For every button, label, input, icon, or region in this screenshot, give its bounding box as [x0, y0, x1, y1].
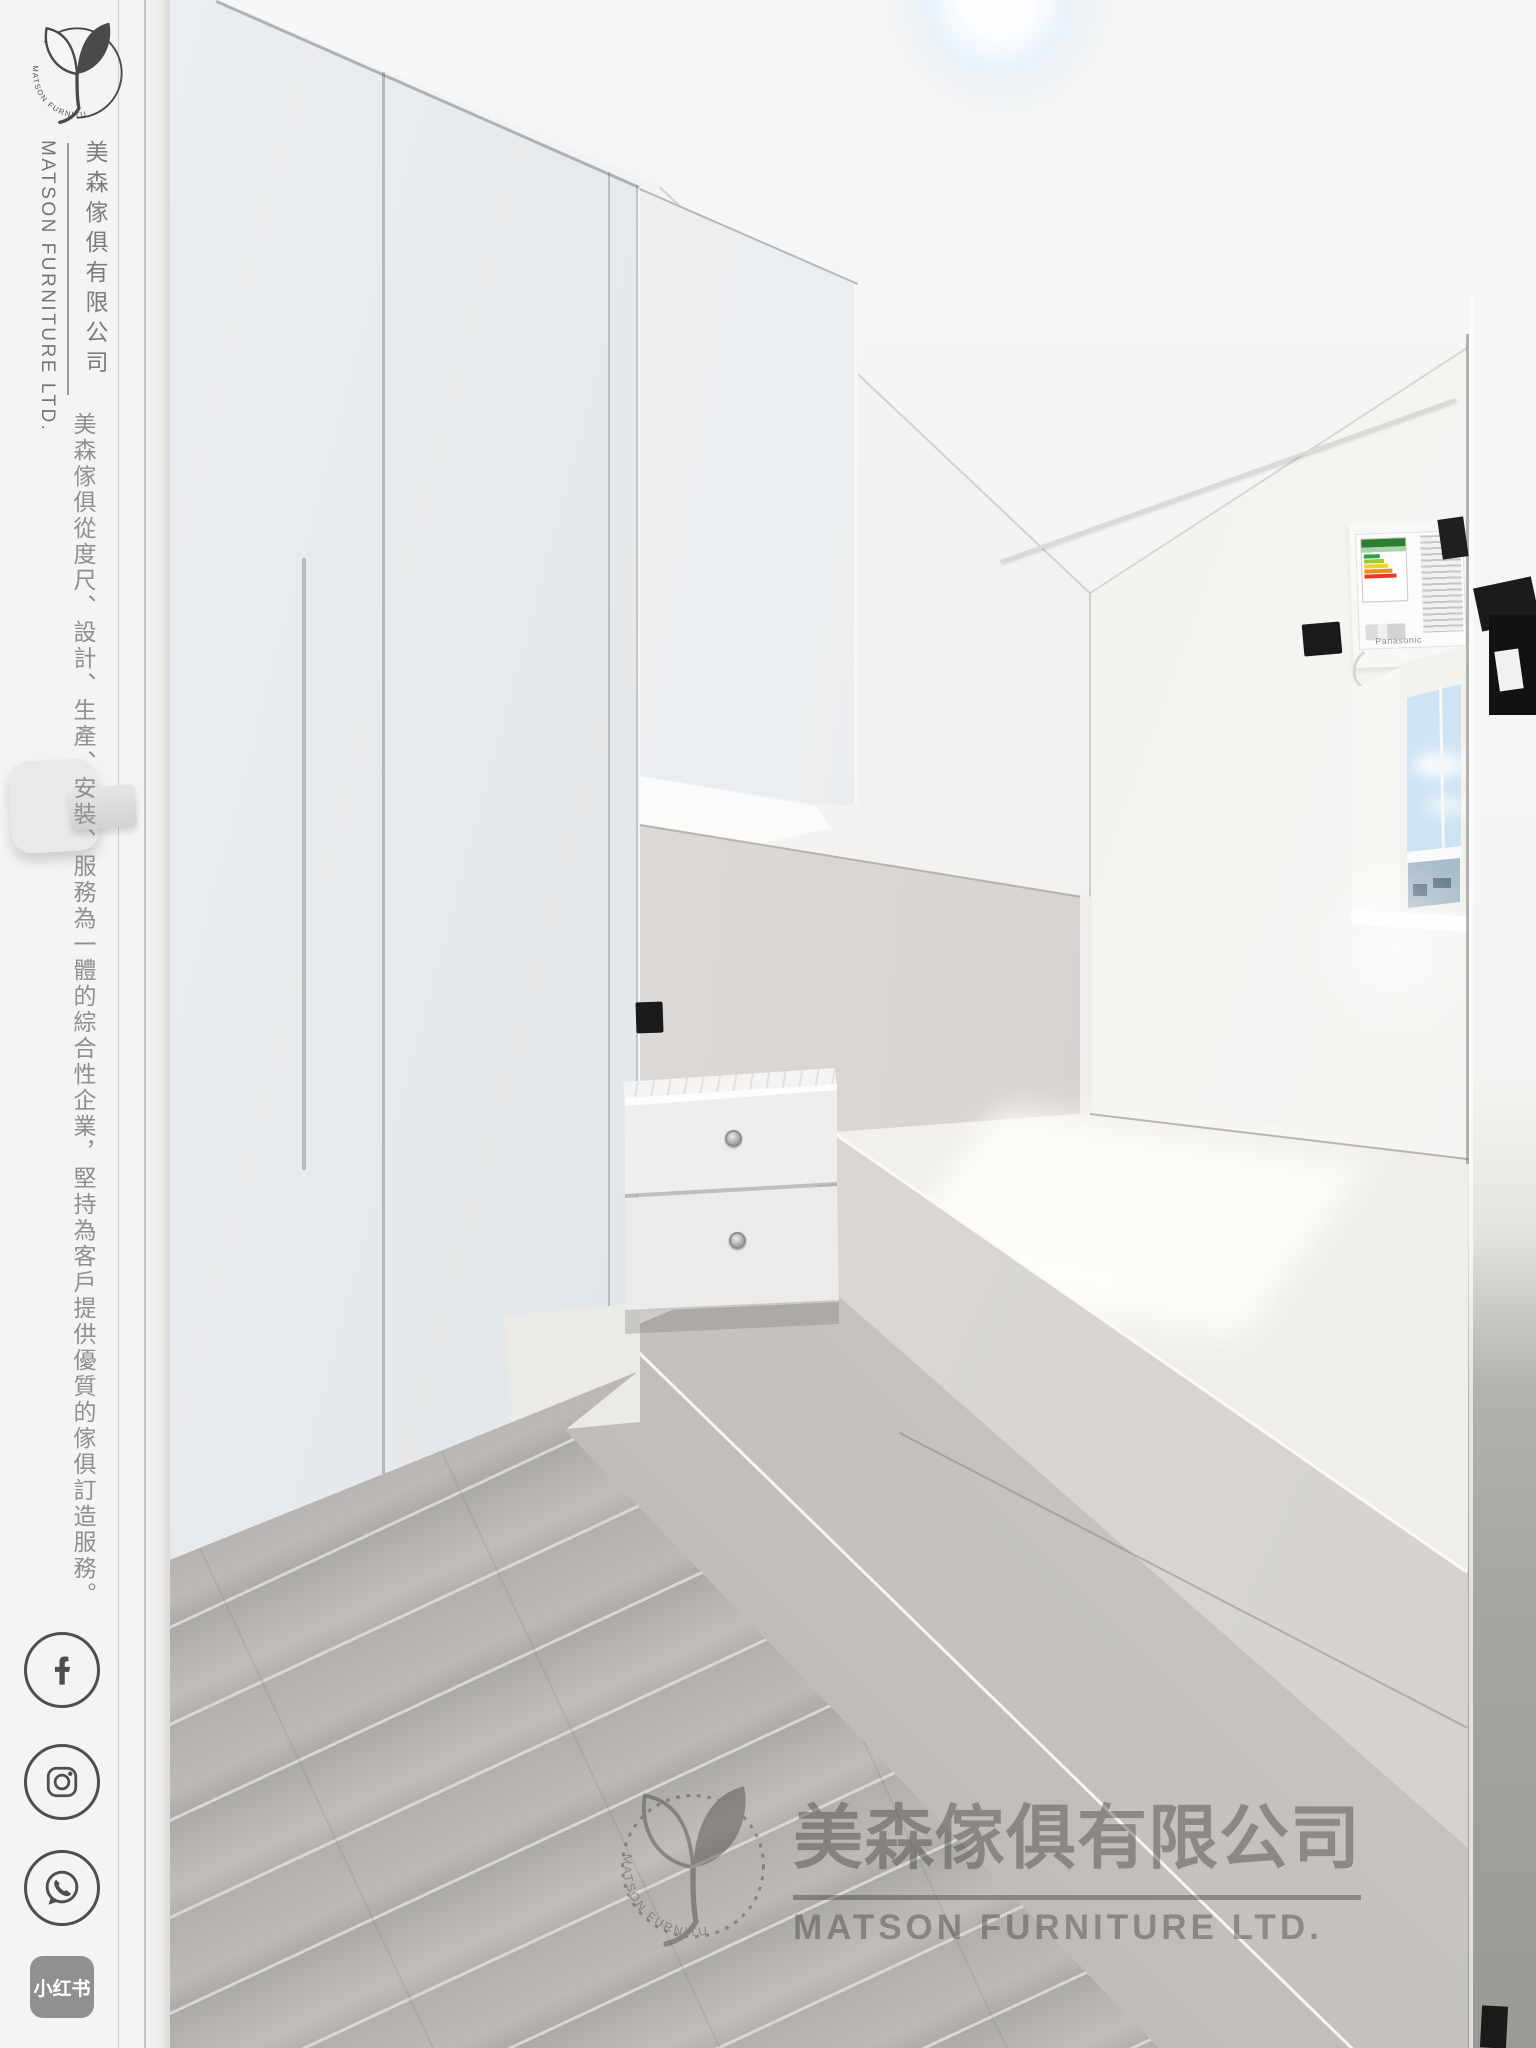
door-latch: [1437, 516, 1468, 559]
room-photo: Panasonic: [145, 0, 1536, 2048]
cloud: [1413, 752, 1465, 778]
sidebar-divider: [144, 0, 146, 2048]
ac-brand-text: Panasonic: [1375, 635, 1422, 647]
xiaohongshu-icon[interactable]: 小红书: [30, 1956, 94, 2018]
wardrobe-handle-groove: [302, 558, 306, 1170]
energy-label: [1360, 537, 1408, 603]
xiaohongshu-label: 小红书: [33, 1974, 90, 2001]
company-tagline: 美森傢俱從度尺、設計、生產、安裝、服務為一體的綜合性企業，堅持為客戶提供優質的傢…: [66, 412, 100, 1662]
watermark-logo-icon: MATSON FURNITURE: [603, 1768, 783, 1964]
wall-switch: [635, 1002, 663, 1034]
wardrobe-door-seam: [382, 72, 385, 1474]
company-name-en: MATSON FURNITURE LTD.: [36, 140, 58, 410]
company-name-cn: 美森傢俱有限公司: [78, 140, 112, 410]
drawer-knob: [729, 1232, 746, 1249]
company-name-block: MATSON FURNITURE LTD. 美森傢俱有限公司: [36, 140, 112, 410]
wall-switch: [1302, 621, 1343, 656]
watermark-company-en: MATSON FURNITURE LTD.: [793, 1908, 1361, 1948]
cloud: [1425, 796, 1467, 816]
name-divider: [67, 143, 69, 395]
cabinet-edge-highlight: [854, 285, 858, 805]
brand-sidebar: MATSON FURNITURE MATSON FURNITURE LTD. 美…: [0, 0, 145, 2048]
company-logo-icon: MATSON FURNITURE: [20, 12, 134, 134]
screenshot-root: Panasonic: [0, 0, 1536, 2048]
door-jamb: [145, 0, 171, 2048]
brand-watermark: MATSON FURNITURE 美森傢俱有限公司 MATSON FURNITU…: [603, 1768, 1536, 2018]
instagram-icon[interactable]: [24, 1744, 100, 1820]
facebook-icon[interactable]: [24, 1632, 100, 1708]
watermark-company-cn: 美森傢俱有限公司: [793, 1782, 1361, 1900]
door-edge-line: [118, 0, 119, 2048]
wardrobe-door-seam: [608, 172, 610, 1377]
whatsapp-icon[interactable]: [24, 1850, 100, 1926]
drawer-knob: [725, 1130, 742, 1147]
